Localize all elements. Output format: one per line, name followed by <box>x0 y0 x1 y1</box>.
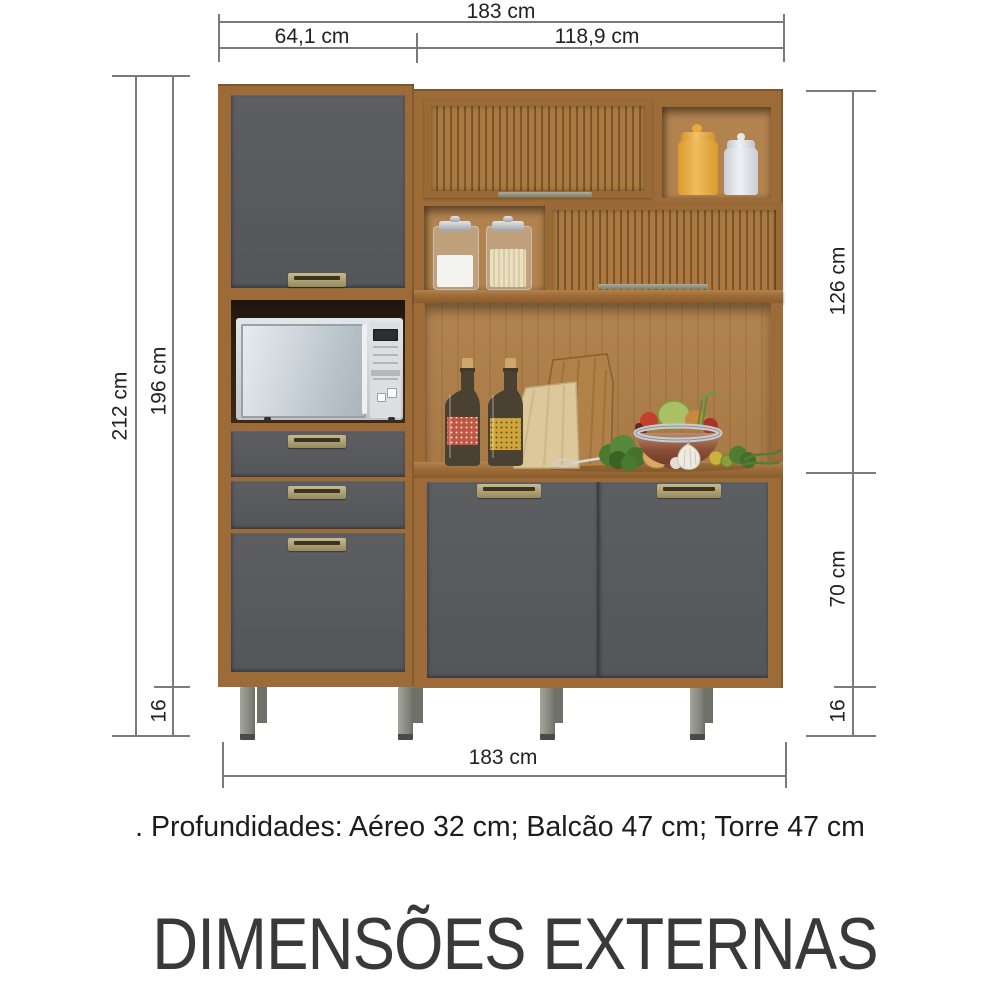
microwave-start-button <box>387 388 397 398</box>
dim-tick <box>806 735 876 737</box>
page-title: DIMENSÕES EXTERNAS <box>152 903 877 986</box>
cabinet-foot <box>540 687 555 740</box>
dim-tick <box>806 472 876 474</box>
dim-label-total-height: 212 cm <box>110 372 131 441</box>
dim-tick <box>416 33 418 63</box>
dim-tick <box>785 742 787 788</box>
dim-tick <box>112 735 190 737</box>
base-cabinet-door-left <box>427 482 597 678</box>
wine-bottle-red-label <box>445 358 480 466</box>
dim-label-feet-right: 16 <box>828 699 849 722</box>
microwave-button-grid <box>373 346 398 386</box>
dim-label-total-width-bottom: 183 cm <box>469 747 538 768</box>
jar-salt-lid <box>439 221 471 231</box>
dim-label-total-width-top: 183 cm <box>467 1 536 22</box>
tower-upper-door <box>231 95 405 288</box>
microwave-foot <box>264 417 271 421</box>
counter-decor-illustration <box>414 300 784 478</box>
tower-lower-door <box>231 533 405 672</box>
cabinet-foot <box>398 687 413 740</box>
cabinet-foot-back <box>413 687 423 723</box>
jar-salt-knob <box>450 216 460 222</box>
hutch-sliding-door-bottom-handle <box>598 284 708 289</box>
tower-lower-door-handle <box>288 538 346 551</box>
microwave <box>236 318 403 420</box>
tower-upper-door-handle <box>288 273 346 287</box>
depths-note: . Profundidades: Aéreo 32 cm; Balcão 47 … <box>0 811 1000 844</box>
product-dimensions-diagram: 183 cm 64,1 cm 118,9 cm 212 cm 196 cm 16… <box>0 0 1000 1000</box>
dim-label-body-height: 196 cm <box>149 347 170 416</box>
jar-pasta <box>486 226 532 290</box>
dim-tick <box>783 14 785 62</box>
dim-label-tower-width: 64,1 cm <box>275 26 350 47</box>
cabinet-foot-back <box>257 687 267 723</box>
base-door-right-handle <box>657 484 721 498</box>
dim-label-hutch-width: 118,9 cm <box>555 26 640 47</box>
jar-salt-contents <box>437 255 473 287</box>
cabinet-foot <box>240 687 255 740</box>
dim-line-split-width <box>218 47 784 49</box>
base-cabinet-door-right <box>599 482 768 678</box>
dim-line-right-heights <box>852 90 854 735</box>
wine-bottle-gold-label <box>488 358 523 466</box>
jar-pasta-contents <box>490 249 526 287</box>
jar-pasta-knob <box>503 216 513 222</box>
drawer-1-handle <box>288 435 346 448</box>
dim-label-hutch-height: 126 cm <box>828 247 849 316</box>
canister-yellow <box>678 141 718 195</box>
cabinet-foot <box>690 687 705 740</box>
dim-tick <box>834 686 876 688</box>
dim-line-body-height <box>172 75 174 735</box>
dim-tick <box>806 90 876 92</box>
jar-salt <box>433 226 479 290</box>
dim-line-total-height <box>135 75 137 735</box>
drawer-2-handle <box>288 486 346 499</box>
dim-label-feet-left: 16 <box>149 699 170 722</box>
base-door-left-handle <box>477 484 541 498</box>
door-gap <box>597 482 599 678</box>
dim-tick <box>218 14 220 62</box>
microwave-control-panel <box>370 322 401 418</box>
microwave-foot <box>388 417 395 421</box>
microwave-display <box>373 329 398 341</box>
dim-line-total-width-top <box>218 21 784 23</box>
microwave-stop-button <box>377 393 386 402</box>
dim-tick <box>154 686 190 688</box>
dim-label-base-height: 70 cm <box>828 550 849 607</box>
microwave-door-glass <box>241 324 366 418</box>
dim-line-total-width-bottom <box>222 775 786 777</box>
dim-tick <box>222 742 224 788</box>
jar-pasta-lid <box>492 221 524 231</box>
dim-tick <box>112 75 190 77</box>
hutch-sliding-door-top-handle <box>498 192 592 197</box>
canister-white <box>724 148 758 195</box>
microwave-bar <box>371 370 400 376</box>
microwave-door-handle <box>362 324 367 414</box>
hutch-sliding-door-top <box>424 99 652 198</box>
